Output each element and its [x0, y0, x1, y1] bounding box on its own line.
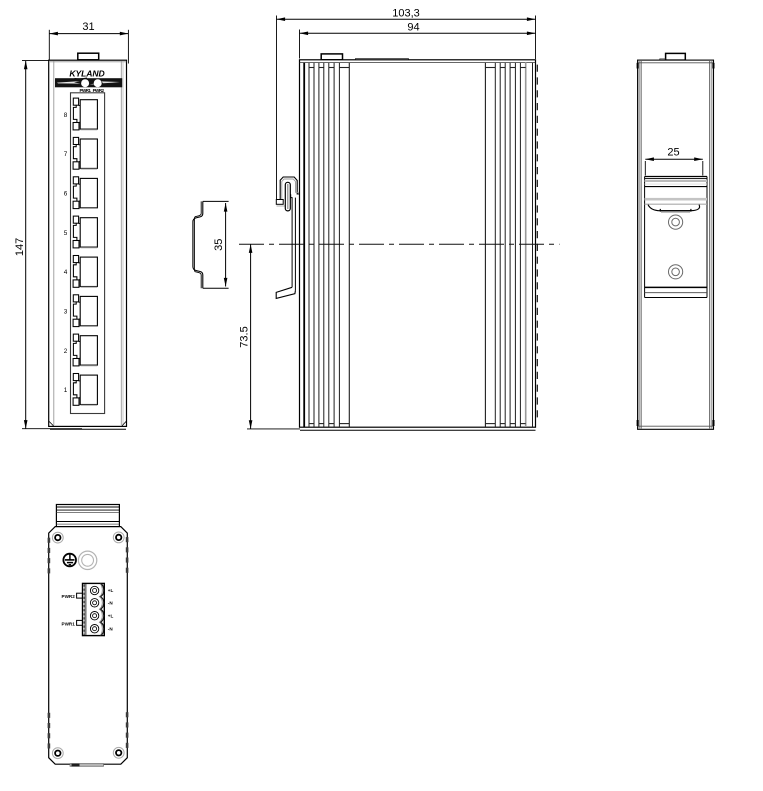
- svg-text:4: 4: [64, 269, 68, 276]
- svg-text:31: 31: [82, 21, 94, 33]
- svg-text:25: 25: [667, 147, 679, 159]
- svg-text:8: 8: [64, 112, 68, 119]
- svg-text:1: 1: [64, 387, 68, 394]
- svg-text:KYLAND: KYLAND: [69, 69, 104, 79]
- svg-text:PWR1: PWR1: [62, 621, 76, 626]
- svg-text:94: 94: [407, 22, 419, 34]
- svg-text:5: 5: [64, 230, 68, 237]
- svg-text:35: 35: [213, 239, 225, 251]
- svg-text:3: 3: [64, 309, 68, 316]
- svg-text:PWR1: PWR1: [80, 88, 92, 93]
- svg-text:PWR2: PWR2: [62, 594, 76, 599]
- svg-text:103,3: 103,3: [392, 8, 420, 20]
- svg-text:73.5: 73.5: [239, 326, 251, 347]
- svg-text:+L: +L: [108, 588, 114, 593]
- svg-text:-N: -N: [108, 601, 114, 606]
- svg-text:PWR2: PWR2: [93, 88, 105, 93]
- svg-text:7: 7: [64, 151, 68, 158]
- svg-text:6: 6: [64, 191, 68, 198]
- svg-text:-N: -N: [108, 626, 114, 631]
- svg-text:2: 2: [64, 348, 68, 355]
- svg-text:+L: +L: [108, 613, 114, 618]
- svg-text:147: 147: [14, 238, 26, 256]
